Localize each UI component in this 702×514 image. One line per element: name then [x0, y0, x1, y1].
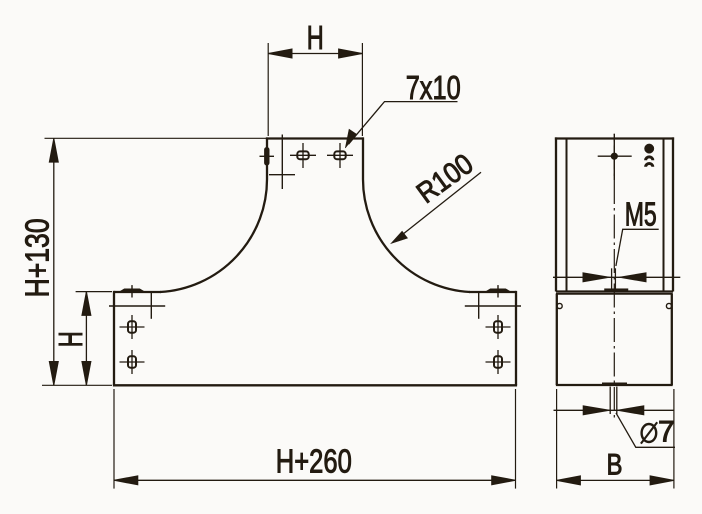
svg-text:H: H	[52, 331, 89, 347]
svg-text:B: B	[607, 449, 623, 482]
svg-text:7: 7	[658, 415, 675, 448]
svg-text:H+130: H+130	[19, 218, 56, 297]
svg-text:7x10: 7x10	[406, 69, 461, 106]
svg-text:H: H	[307, 19, 324, 56]
svg-text:M5: M5	[625, 195, 657, 232]
svg-text:H+260: H+260	[276, 442, 352, 479]
